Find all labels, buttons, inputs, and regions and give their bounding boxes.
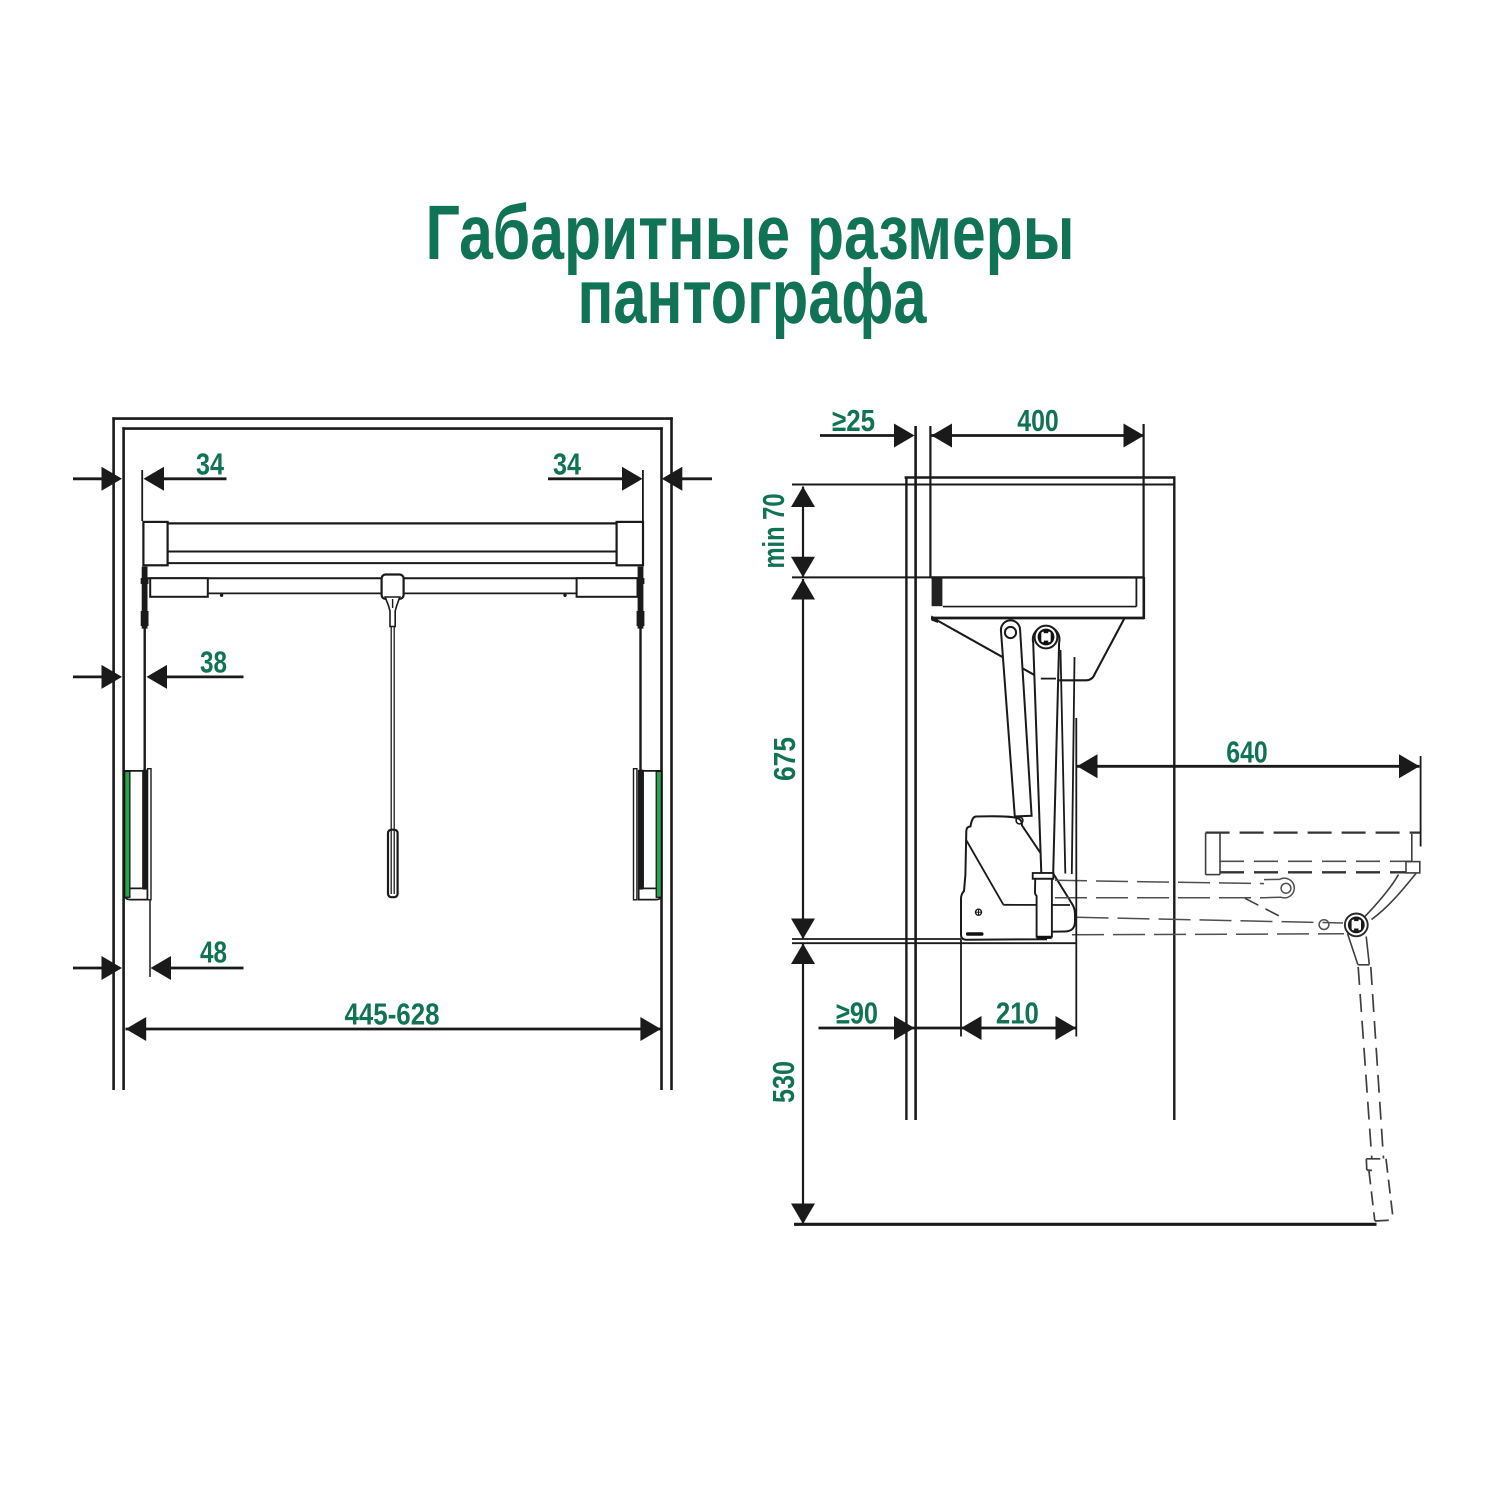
- svg-text:min 70: min 70: [757, 494, 791, 569]
- svg-text:≥25: ≥25: [832, 404, 875, 438]
- svg-text:675: 675: [768, 737, 802, 781]
- svg-text:210: 210: [996, 997, 1039, 1031]
- svg-text:400: 400: [1017, 404, 1059, 438]
- svg-text:34: 34: [553, 448, 581, 482]
- svg-text:640: 640: [1226, 736, 1268, 770]
- svg-text:34: 34: [196, 448, 224, 482]
- svg-text:38: 38: [200, 646, 227, 680]
- svg-text:445-628: 445-628: [345, 997, 440, 1031]
- svg-text:≥90: ≥90: [836, 997, 878, 1031]
- svg-text:530: 530: [767, 1061, 801, 1103]
- svg-text:пантографа: пантографа: [578, 254, 928, 340]
- svg-text:48: 48: [200, 936, 227, 970]
